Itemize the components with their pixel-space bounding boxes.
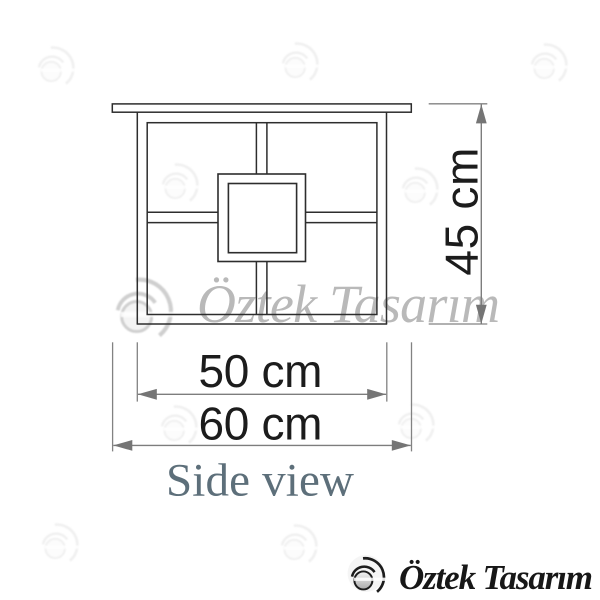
svg-text:Öztek Tasarım: Öztek Tasarım bbox=[399, 558, 593, 597]
svg-text:45 cm: 45 cm bbox=[435, 148, 487, 276]
svg-text:50 cm: 50 cm bbox=[199, 345, 323, 397]
svg-text:Side view: Side view bbox=[166, 455, 354, 507]
svg-text:60 cm: 60 cm bbox=[199, 398, 323, 450]
svg-text:Öztek Tasarım: Öztek Tasarım bbox=[197, 274, 500, 334]
